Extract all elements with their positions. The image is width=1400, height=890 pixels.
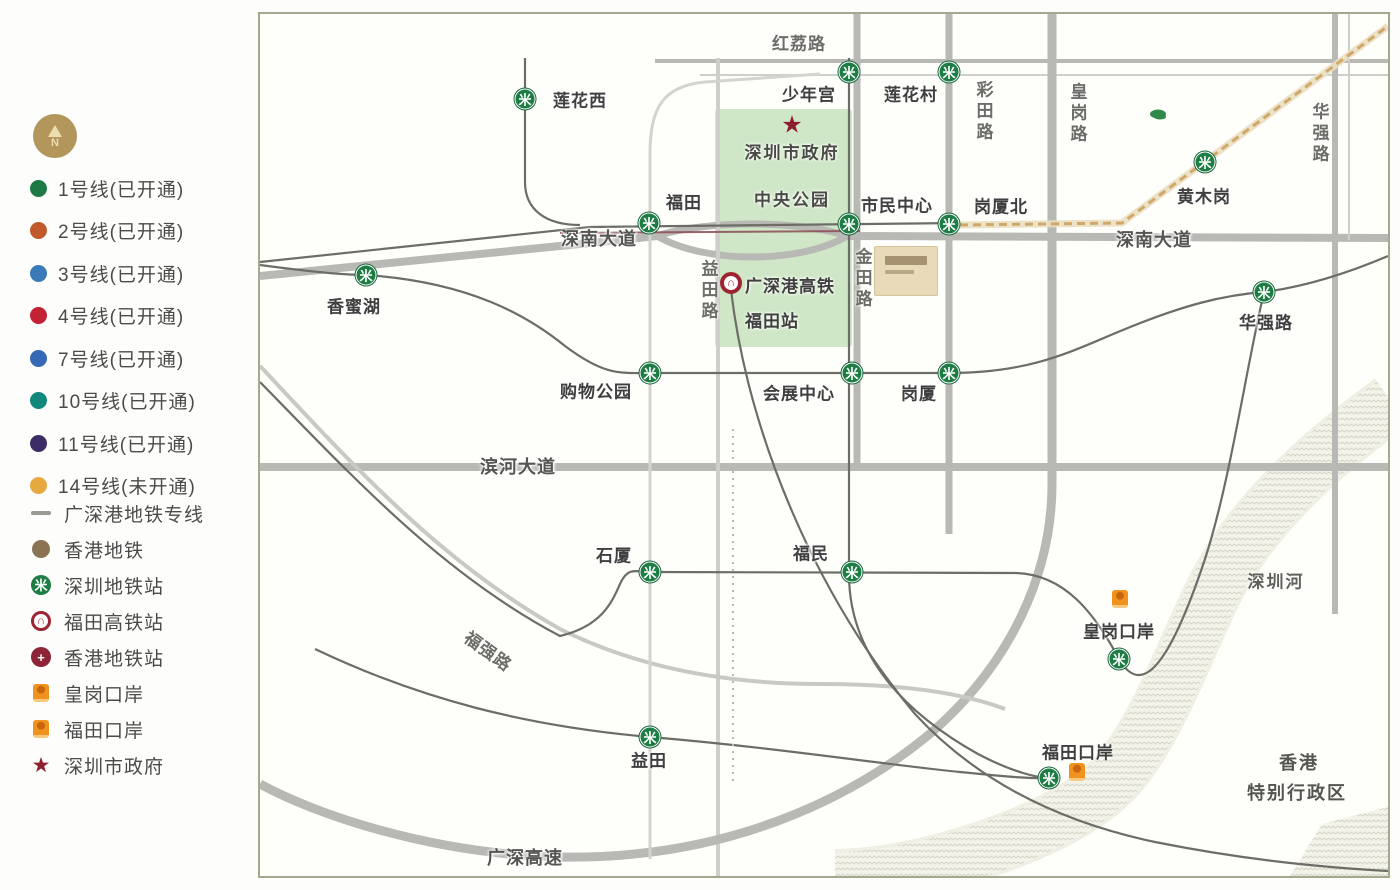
port-label: 福田口岸 [1042,739,1114,764]
legend-line-item: 10号线(已开通) [30,388,196,414]
metro-station-icon: 米 [842,562,863,583]
tree-icon [1150,110,1166,119]
legend-line-label: 4号线(已开通) [58,302,184,329]
line-color-dot-icon [30,180,47,197]
legend-symbols: 广深港地铁专线 香港地铁 米 深圳地铁站 ∩ 福田高铁站 + 香港地铁站 皇岗口… [30,498,204,780]
line-color-dot-icon [30,435,47,452]
metro-station-icon: 米 [939,214,960,235]
government-star-icon: ★ [781,111,803,140]
legend-line-label: 7号线(已开通) [58,345,184,372]
road-label: 金田路 [850,248,875,311]
hk-line-dot-icon [30,540,52,558]
legend-line-label: 3号线(已开通) [58,260,184,287]
legend-line-item: 3号线(已开通) [30,260,196,286]
legend-symbol-item: 皇岗口岸 [30,678,204,708]
compass-north-arrow [48,125,62,137]
road-label: 深南大道 [1116,226,1192,252]
legend-symbol-item: ∩ 福田高铁站 [30,606,204,636]
station-label: 市民中心 [861,192,933,217]
project-logo-badge [874,246,938,296]
road-label: 益田路 [696,260,721,323]
metro-station-icon: 米 [839,62,860,83]
station-label: 石厦 [596,542,632,567]
legend-symbol-item: ★ 深圳市政府 [30,750,204,780]
road-label: 深南大道 [561,225,637,251]
station-label: 少年宫 [782,81,836,106]
futian-hsr-station-icon: ∩ [720,272,742,294]
metro-station-icon: 米 [639,213,660,234]
map-panel: ★ ∩ 广深港高铁 福田站 米莲花西米少年宫米莲花村米黄木岗米福田米市民中心米岗… [258,12,1390,878]
metro-station-icon: 米 [515,89,536,110]
legend-symbol-label: 深圳市政府 [64,752,164,779]
station-label: 福田 [666,189,702,214]
station-label: 黄木岗 [1177,183,1231,208]
road-label: 广深高速 [487,844,563,870]
metro-station-icon: 米 [939,363,960,384]
legend-symbol-item: 香港地铁 [30,534,204,564]
rail-line-sample-icon [30,511,52,515]
port-icon [30,720,52,738]
area-label: 香港 [1279,749,1319,775]
legend-line-item: 11号线(已开通) [30,430,196,456]
legend-line-label: 11号线(已开通) [58,430,194,457]
legend-line-item: 1号线(已开通) [30,175,196,201]
map-overlay: ★ ∩ 广深港高铁 福田站 米莲花西米少年宫米莲花村米黄木岗米福田米市民中心米岗… [260,14,1392,880]
station-label: 华强路 [1239,309,1293,334]
metro-station-icon: 米 [640,363,661,384]
station-label: 岗厦北 [974,193,1028,218]
area-label: 中央公园 [754,186,830,211]
area-label: 深圳河 [1248,568,1305,593]
legend-symbol-label: 深圳地铁站 [64,572,164,599]
hk-metro-station-icon: + [30,647,52,667]
legend-line-item: 4号线(已开通) [30,303,196,329]
legend-line-label: 1号线(已开通) [58,175,184,202]
metro-station-icon: 米 [842,363,863,384]
station-label: 莲花西 [553,87,607,112]
road-label: 红荔路 [772,30,826,55]
road-label: 皇岗路 [1065,83,1090,146]
area-label: 特别行政区 [1247,779,1347,805]
line-color-dot-icon [30,350,47,367]
station-label: 莲花村 [884,81,938,106]
station-label: 岗厦 [901,380,937,405]
station-label: 福民 [793,540,829,565]
hsr-station-label: 广深港高铁 福田站 [745,269,835,339]
metro-station-icon: 米 [939,62,960,83]
metro-station-icon: 米 [1109,649,1130,670]
station-label: 购物公园 [560,378,632,403]
metro-station-icon: 米 [1039,768,1060,789]
line-color-dot-icon [30,392,47,409]
shenzhen-metro-station-icon: 米 [30,575,52,595]
line-color-dot-icon [30,265,47,282]
legend-symbol-label: 皇岗口岸 [64,680,144,707]
legend-symbol-label: 福田口岸 [64,716,144,743]
legend-symbol-label: 福田高铁站 [64,608,164,635]
metro-station-icon: 米 [356,265,377,286]
metro-station-icon: 米 [839,214,860,235]
page: { "compass": { "letter": "N" }, "legend"… [0,0,1400,890]
station-label: 益田 [631,747,667,772]
legend-line-label: 2号线(已开通) [58,217,184,244]
legend-symbol-label: 香港地铁 [64,536,144,563]
road-label: 滨河大道 [480,453,556,479]
port-label: 皇岗口岸 [1083,618,1155,643]
legend-symbol-label: 广深港地铁专线 [64,500,204,527]
legend-line-label: 14号线(未开通) [58,472,196,499]
legend-metro-lines: 1号线(已开通) 2号线(已开通) 3号线(已开通) 4号线(已开通) 7号线(… [30,175,196,499]
metro-station-icon: 米 [1195,152,1216,173]
road-label: 华强路 [1307,103,1332,166]
station-label: 香蜜湖 [327,293,381,318]
legend-line-item: 2号线(已开通) [30,218,196,244]
line-color-dot-icon [30,307,47,324]
line-color-dot-icon [30,477,47,494]
compass-icon: N [33,114,77,158]
metro-station-icon: 米 [640,727,661,748]
hsr-station-icon: ∩ [30,611,52,631]
metro-station-icon: 米 [1254,282,1275,303]
government-star-icon: ★ [30,755,52,776]
legend-line-label: 10号线(已开通) [58,387,196,414]
port-icon [30,684,52,702]
metro-station-icon: 米 [640,562,661,583]
legend-line-item: 14号线(未开通) [30,473,196,499]
legend-symbol-item: 广深港地铁专线 [30,498,204,528]
legend-line-item: 7号线(已开通) [30,345,196,371]
area-label: 深圳市政府 [745,139,840,164]
legend-symbol-item: 福田口岸 [30,714,204,744]
legend-symbol-item: + 香港地铁站 [30,642,204,672]
road-label: 彩田路 [971,81,996,144]
road-label: 福强路 [460,624,518,676]
port-icon [1112,590,1128,608]
legend-symbol-label: 香港地铁站 [64,644,164,671]
compass-letter: N [51,138,59,148]
station-label: 会展中心 [763,380,835,405]
port-icon [1069,763,1085,781]
legend-symbol-item: 米 深圳地铁站 [30,570,204,600]
line-color-dot-icon [30,222,47,239]
